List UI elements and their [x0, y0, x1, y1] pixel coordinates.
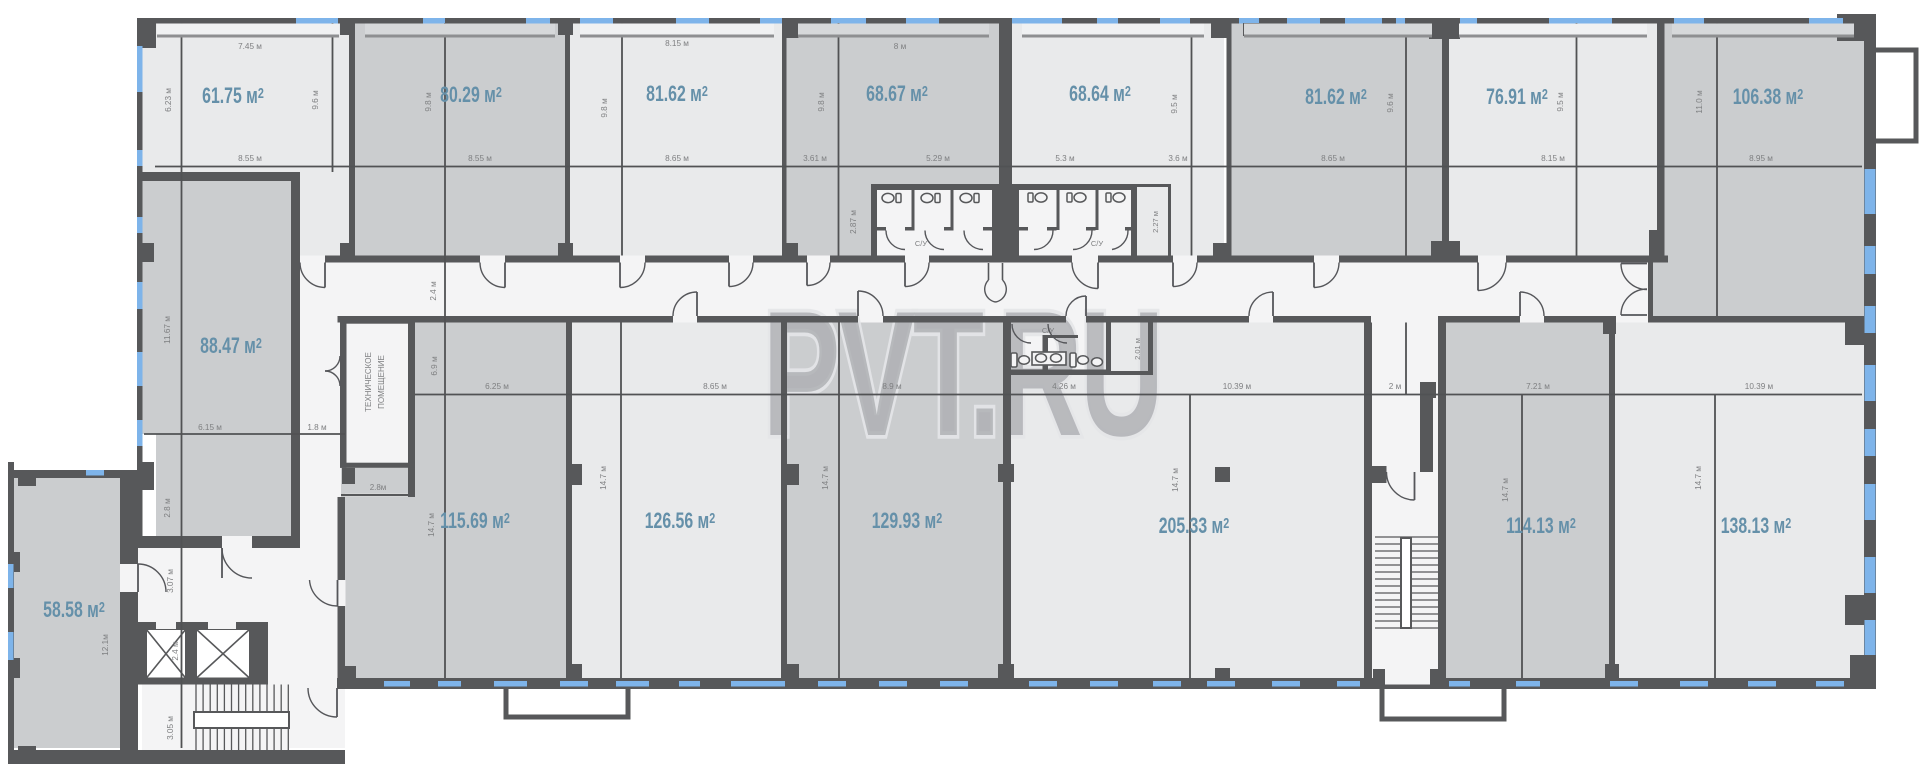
svg-text:2.8м: 2.8м: [370, 483, 387, 492]
svg-text:6.23 м: 6.23 м: [164, 88, 173, 112]
svg-text:10.39 м: 10.39 м: [1223, 382, 1252, 391]
svg-text:7.45 м: 7.45 м: [238, 42, 262, 51]
svg-text:ТЕХНИЧЕСКОЕ: ТЕХНИЧЕСКОЕ: [364, 352, 373, 412]
svg-text:9.6 м: 9.6 м: [1386, 93, 1395, 113]
svg-text:68.64 м2: 68.64 м2: [1069, 82, 1131, 107]
svg-text:2.8 м: 2.8 м: [163, 498, 172, 518]
svg-text:2.01 м: 2.01 м: [1133, 338, 1142, 360]
svg-text:81.62 м2: 81.62 м2: [1305, 85, 1367, 110]
svg-text:3.05 м: 3.05 м: [166, 716, 175, 740]
svg-text:138.13 м2: 138.13 м2: [1721, 514, 1792, 539]
svg-text:9.6 м: 9.6 м: [311, 90, 320, 110]
svg-text:80.29 м2: 80.29 м2: [440, 83, 502, 108]
svg-text:88.47 м2: 88.47 м2: [200, 334, 262, 359]
svg-text:4.26 м: 4.26 м: [1052, 382, 1076, 391]
svg-text:ПОМЕЩЕНИЕ: ПОМЕЩЕНИЕ: [377, 355, 386, 409]
svg-text:8.65 м: 8.65 м: [703, 382, 727, 391]
svg-text:5.29 м: 5.29 м: [926, 154, 950, 163]
svg-text:6.15 м: 6.15 м: [198, 423, 222, 432]
svg-text:11.67 м: 11.67 м: [163, 316, 172, 344]
svg-text:11.0 м: 11.0 м: [1695, 90, 1704, 114]
svg-text:8.9 м: 8.9 м: [882, 382, 902, 391]
svg-text:9.8 м: 9.8 м: [600, 98, 609, 118]
svg-text:129.93 м2: 129.93 м2: [872, 509, 943, 534]
svg-text:8.55 м: 8.55 м: [468, 154, 492, 163]
svg-text:81.62 м2: 81.62 м2: [646, 82, 708, 107]
svg-text:12.1м: 12.1м: [101, 634, 110, 656]
svg-text:10.39 м: 10.39 м: [1745, 382, 1774, 391]
svg-text:114.13 м2: 114.13 м2: [1506, 514, 1576, 539]
svg-text:8.15 м: 8.15 м: [1541, 154, 1565, 163]
svg-text:С/У: С/У: [915, 239, 928, 248]
svg-text:14.7 м: 14.7 м: [427, 513, 436, 537]
svg-text:7.21 м: 7.21 м: [1526, 382, 1550, 391]
svg-text:205.33 м2: 205.33 м2: [1159, 514, 1230, 539]
svg-text:8.65 м: 8.65 м: [1321, 154, 1345, 163]
svg-text:2.27 м: 2.27 м: [1151, 211, 1160, 233]
svg-text:9.8 м: 9.8 м: [817, 92, 826, 112]
svg-text:8.65 м: 8.65 м: [665, 154, 689, 163]
svg-text:126.56 м2: 126.56 м2: [645, 509, 716, 534]
svg-text:8.95 м: 8.95 м: [1749, 154, 1773, 163]
svg-text:2.4 м: 2.4 м: [429, 281, 438, 301]
svg-text:6.9 м: 6.9 м: [430, 356, 439, 376]
svg-text:115.69 м2: 115.69 м2: [440, 509, 510, 534]
svg-text:2.87 м: 2.87 м: [849, 210, 858, 234]
svg-text:9.8 м: 9.8 м: [424, 92, 433, 112]
svg-text:14.7 м: 14.7 м: [1501, 478, 1510, 502]
svg-text:14.7 м: 14.7 м: [1171, 468, 1180, 492]
svg-text:2 м: 2 м: [1389, 382, 1402, 391]
svg-text:5.3 м: 5.3 м: [1055, 154, 1075, 163]
svg-text:3.07 м: 3.07 м: [166, 569, 175, 593]
svg-text:8.15 м: 8.15 м: [665, 39, 689, 48]
svg-text:8 м: 8 м: [894, 42, 907, 51]
svg-text:61.75 м2: 61.75 м2: [202, 84, 264, 109]
svg-text:3.61 м: 3.61 м: [803, 154, 827, 163]
svg-text:14.7 м: 14.7 м: [599, 466, 608, 490]
svg-text:76.91 м2: 76.91 м2: [1486, 85, 1548, 110]
svg-text:6.25 м: 6.25 м: [485, 382, 509, 391]
svg-text:С/У: С/У: [1091, 239, 1104, 248]
svg-text:3.6 м: 3.6 м: [1168, 154, 1188, 163]
svg-text:14.7 м: 14.7 м: [1694, 466, 1703, 490]
svg-text:1.8 м: 1.8 м: [307, 423, 327, 432]
svg-text:9.5 м: 9.5 м: [1170, 94, 1179, 114]
svg-text:2.4 м: 2.4 м: [171, 641, 180, 661]
svg-text:9.5 м: 9.5 м: [1556, 92, 1565, 112]
svg-text:14.7 м: 14.7 м: [821, 466, 830, 490]
svg-text:106.38 м2: 106.38 м2: [1733, 85, 1804, 110]
svg-text:8.55 м: 8.55 м: [238, 154, 262, 163]
svg-text:58.58 м2: 58.58 м2: [43, 598, 105, 623]
svg-text:68.67 м2: 68.67 м2: [866, 82, 928, 107]
